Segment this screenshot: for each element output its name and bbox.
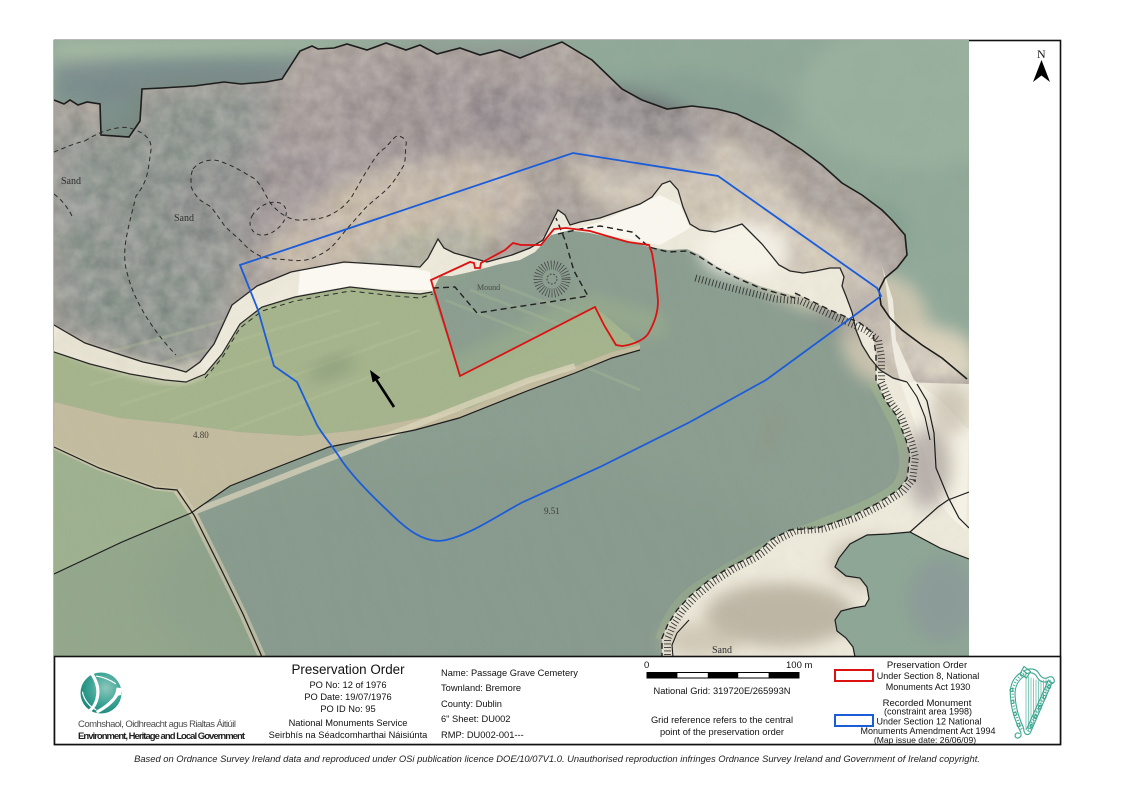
svg-text:National Grid: 319720E/265993N: National Grid: 319720E/265993N: [654, 686, 791, 696]
svg-text:Under Section 12 National: Under Section 12 National: [876, 717, 981, 727]
svg-text:Comhshaol, Oidhreacht agus Ria: Comhshaol, Oidhreacht agus Rialtas Áitiú…: [78, 719, 236, 730]
svg-text:Grid reference refers to the c: Grid reference refers to the central: [651, 715, 793, 725]
svg-text:Monuments Act 1930: Monuments Act 1930: [886, 682, 971, 692]
svg-text:Townland: Bremore: Townland: Bremore: [441, 683, 521, 693]
svg-text:Preservation Order: Preservation Order: [291, 662, 405, 677]
svg-text:(Map issue date: 26/06/09): (Map issue date: 26/06/09): [874, 735, 976, 745]
svg-text:PO No: 12 of 1976: PO No: 12 of 1976: [309, 680, 386, 690]
svg-text:N: N: [1037, 47, 1046, 61]
svg-text:(constraint area 1998): (constraint area 1998): [884, 707, 972, 717]
svg-text:100 m: 100 m: [786, 660, 812, 671]
svg-text:6" Sheet: DU002: 6" Sheet: DU002: [441, 714, 510, 724]
svg-text:Mound: Mound: [477, 283, 500, 292]
svg-text:Under Section 8, National: Under Section 8, National: [877, 671, 980, 681]
svg-text:National Monuments Service: National Monuments Service: [289, 718, 408, 728]
svg-text:PO ID No: 95: PO ID No: 95: [320, 704, 375, 714]
svg-text:Sand: Sand: [174, 213, 194, 224]
svg-text:Environment, Heritage and Loca: Environment, Heritage and Local Governme…: [78, 731, 246, 742]
svg-text:4.80: 4.80: [193, 430, 209, 440]
svg-text:Name: Passage Grave Cemetery: Name: Passage Grave Cemetery: [441, 668, 578, 678]
svg-text:Preservation Order: Preservation Order: [887, 660, 967, 671]
svg-text:Seirbhís na Séadcomharthai Nái: Seirbhís na Séadcomharthai Náisiúnta: [269, 730, 428, 740]
svg-text:Sand: Sand: [61, 176, 81, 187]
svg-text:Sand: Sand: [712, 645, 732, 656]
svg-text:RMP: DU002-001---: RMP: DU002-001---: [441, 730, 524, 740]
svg-text:9.51: 9.51: [544, 506, 560, 516]
svg-text:County: Dublin: County: Dublin: [441, 699, 502, 709]
svg-text:Based on Ordnance Survey Irela: Based on Ordnance Survey Ireland data an…: [134, 753, 980, 764]
svg-text:PO Date: 19/07/1976: PO Date: 19/07/1976: [304, 692, 391, 702]
svg-text:point of the preservation orde: point of the preservation order: [660, 727, 784, 737]
svg-text:0: 0: [644, 660, 649, 671]
